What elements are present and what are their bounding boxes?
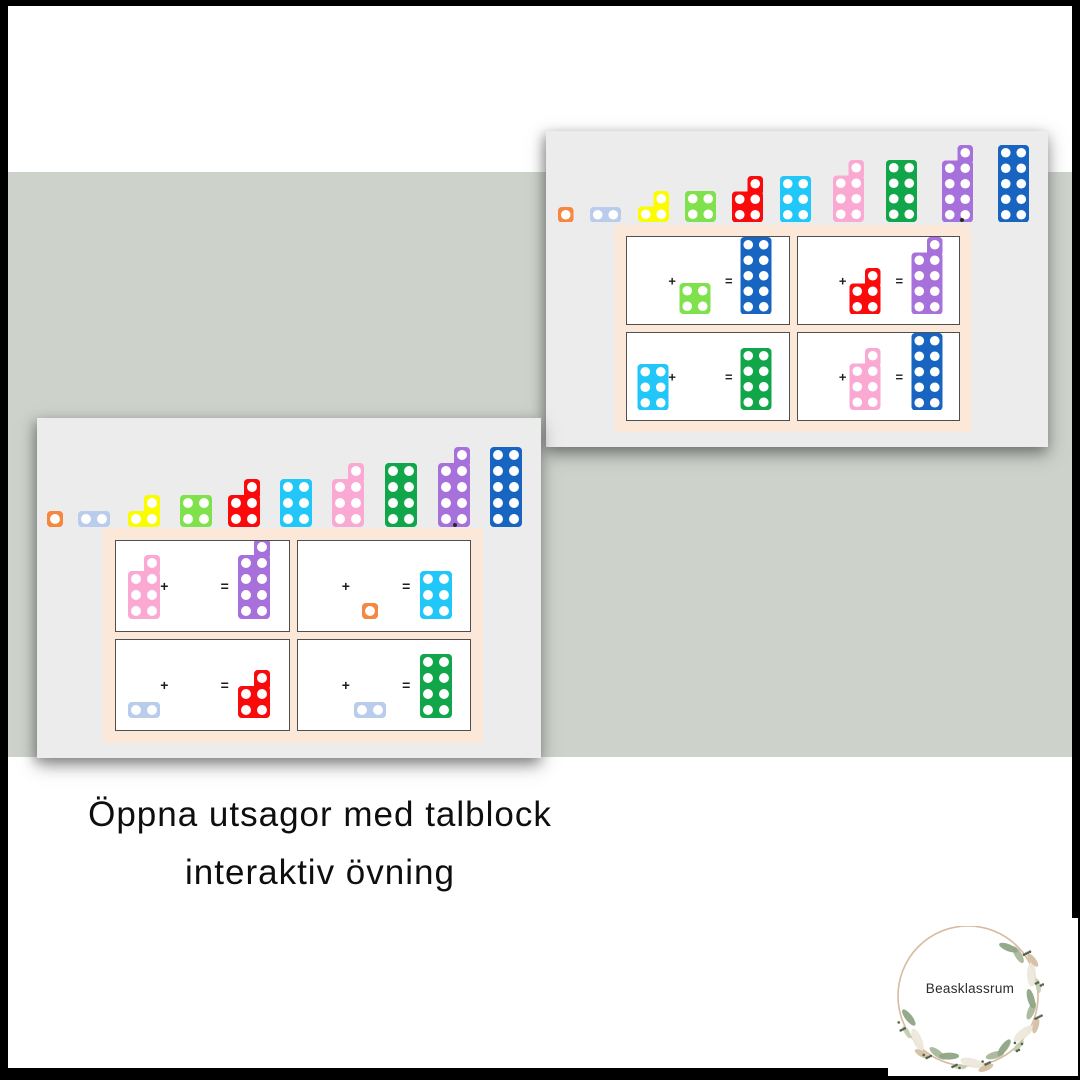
numicon-block-5[interactable] [732, 176, 763, 223]
numicon-block-2[interactable] [590, 207, 621, 223]
numicon-block-5[interactable] [850, 268, 881, 315]
equals-operator: = [725, 369, 733, 384]
numicon-block-2[interactable] [78, 511, 110, 527]
equals-operator: = [725, 273, 733, 288]
numicon-block-7[interactable] [128, 555, 160, 619]
numicon-block-6[interactable] [420, 571, 452, 619]
numicon-block-9[interactable] [911, 237, 942, 315]
numicon-block-5[interactable] [238, 670, 270, 718]
numicon-block-10[interactable] [911, 333, 942, 411]
equation-card[interactable]: += [297, 639, 472, 731]
plus-operator: + [160, 677, 168, 693]
numicon-block-3[interactable] [128, 495, 160, 527]
numicon-block-6[interactable] [637, 364, 668, 411]
numicon-block-4[interactable] [685, 191, 716, 222]
numicon-block-9[interactable] [238, 540, 270, 619]
numicon-block-1[interactable] [362, 603, 378, 619]
brand-name: Beasklassrum [890, 981, 1050, 996]
plus-operator: + [839, 369, 847, 384]
equals-operator: = [895, 273, 903, 288]
equation-card[interactable]: += [297, 540, 472, 632]
wreath-icon [894, 926, 1044, 1076]
cursor-dot [960, 218, 964, 222]
equation-card-panel: +=+=+=+= [615, 225, 971, 432]
equation-card[interactable]: += [626, 236, 790, 325]
numicon-block-9[interactable] [942, 145, 973, 223]
numicon-block-4[interactable] [679, 283, 710, 314]
equation-card[interactable]: += [115, 540, 290, 632]
equation-card-panel: +=+=+=+= [103, 528, 483, 743]
equation-card[interactable]: += [626, 332, 790, 421]
equals-operator: = [402, 578, 410, 594]
numicon-block-10[interactable] [741, 237, 772, 315]
numicon-block-4[interactable] [180, 495, 212, 527]
numicon-block-7[interactable] [833, 160, 864, 222]
numicon-block-8[interactable] [741, 348, 772, 410]
equals-operator: = [895, 369, 903, 384]
plus-operator: + [668, 369, 676, 384]
numicon-block-3[interactable] [638, 191, 669, 222]
exercise-screenshot-bottom-left: +=+=+=+= [37, 418, 541, 758]
caption-line-1: Öppna utsagor med talblock [8, 795, 632, 835]
numicon-block-8[interactable] [385, 463, 417, 527]
numicon-block-1[interactable] [47, 511, 63, 527]
caption-line-2: interaktiv övning [8, 853, 632, 893]
numicon-block-8[interactable] [886, 160, 917, 222]
plus-operator: + [342, 578, 350, 594]
equals-operator: = [402, 677, 410, 693]
equation-card[interactable]: += [797, 332, 961, 421]
numicon-block-2[interactable] [128, 702, 160, 718]
plus-operator: + [160, 578, 168, 594]
plus-operator: + [342, 677, 350, 693]
numicon-block-9[interactable] [438, 447, 470, 527]
frame-border-left [0, 0, 8, 1080]
plus-operator: + [839, 273, 847, 288]
pin-image: +=+=+=+= +=+=+=+= Öppna utsagor med talb… [0, 0, 1080, 1080]
numicon-block-10[interactable] [998, 145, 1029, 223]
caption: Öppna utsagor med talblock interaktiv öv… [8, 795, 632, 893]
exercise-screenshot-top-right: +=+=+=+= [546, 131, 1048, 447]
equation-card[interactable]: += [115, 639, 290, 731]
numicon-block-7[interactable] [850, 348, 881, 410]
numicon-block-6[interactable] [280, 479, 312, 527]
numicon-block-1[interactable] [558, 207, 574, 223]
numicon-block-8[interactable] [420, 654, 452, 718]
numicon-block-10[interactable] [490, 447, 522, 527]
numicon-block-5[interactable] [228, 479, 260, 527]
cursor-dot [453, 523, 457, 527]
frame-border-top [0, 0, 1080, 6]
numicon-block-2[interactable] [354, 702, 386, 718]
equals-operator: = [221, 578, 229, 594]
equation-card[interactable]: += [797, 236, 961, 325]
equals-operator: = [221, 677, 229, 693]
numicon-block-6[interactable] [780, 176, 811, 223]
brand-logo: Beasklassrum [888, 918, 1078, 1076]
plus-operator: + [668, 273, 676, 288]
numicon-block-7[interactable] [332, 463, 364, 527]
